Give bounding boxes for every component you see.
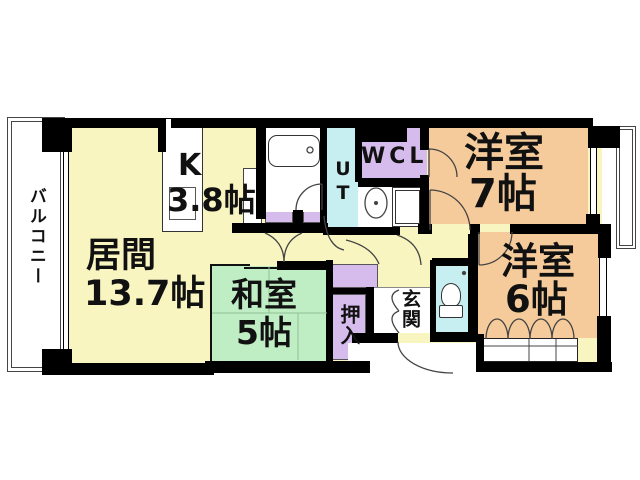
living-room-area: 13.7帖 (84, 276, 205, 313)
entrance-label: 玄関 (399, 289, 419, 329)
living-room-label: 居間 (86, 238, 156, 275)
oshiire-label: 押入 (338, 304, 359, 346)
japanese-room-label: 和室 (231, 278, 297, 313)
western-room-6-label: 洋室 (501, 243, 575, 282)
kitchen-area: 3.8帖 (167, 184, 256, 218)
western-room-6-area: 6帖 (505, 281, 568, 320)
walk-in-closet-label: WCL (361, 145, 427, 168)
balcony-label: バルコニー (26, 187, 44, 287)
floor-plan: 居間 13.7帖 K 3.8帖 和室 5帖 洋室 7帖 洋室 6帖 WCL UT… (0, 0, 640, 480)
kitchen-label: K (178, 150, 201, 182)
utility-label: UT (332, 158, 352, 206)
japanese-room-area: 5帖 (236, 316, 292, 351)
western-room-7-label: 洋室 (464, 132, 544, 174)
western-room-7-area: 7帖 (469, 173, 537, 215)
